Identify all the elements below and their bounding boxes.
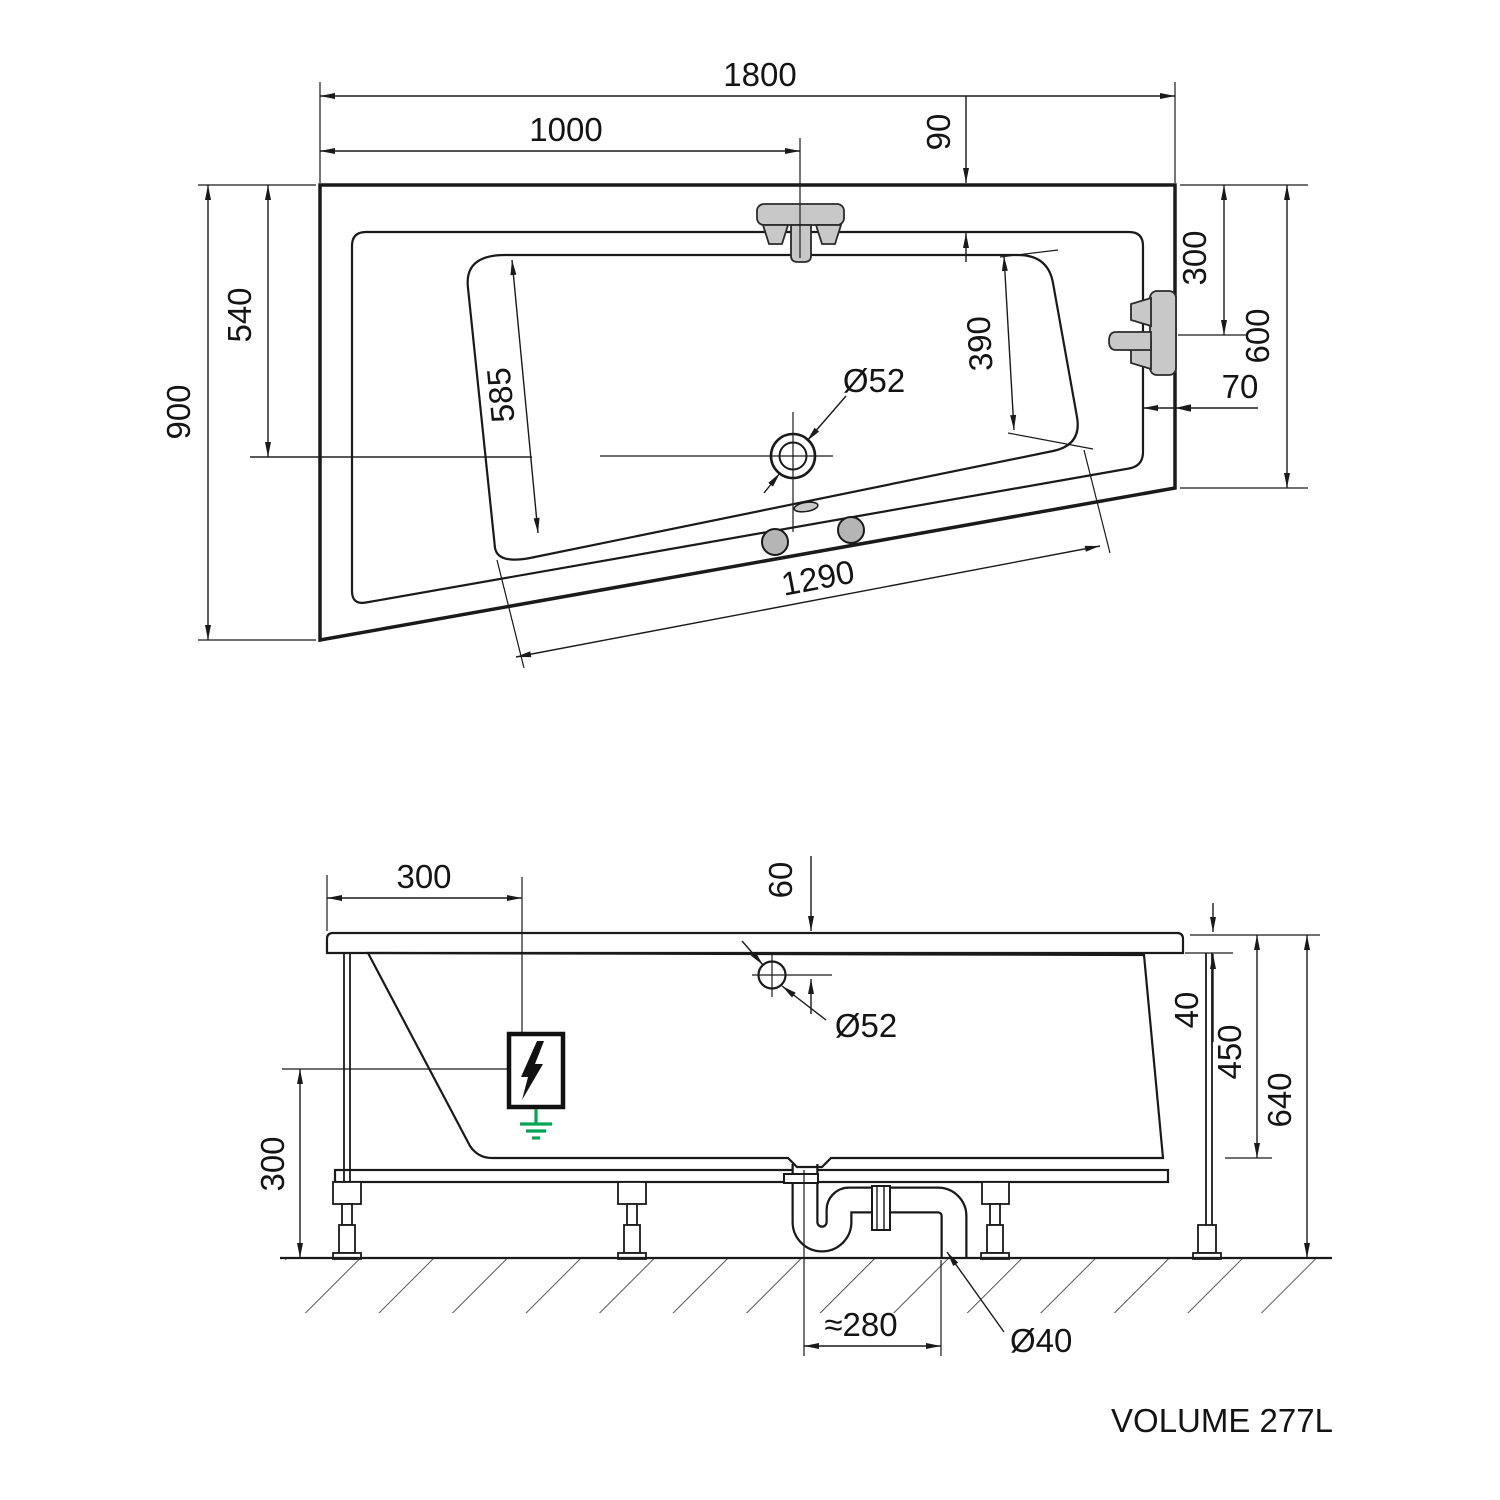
dim-electric-from-left: 300 (327, 858, 522, 931)
dim-1800-label: 1800 (723, 56, 796, 93)
dim-300-left-label: 300 (254, 1136, 291, 1191)
faucet-handle-left (763, 225, 788, 244)
dim-1290-label: 1290 (778, 553, 857, 603)
dim-390-label: 390 (959, 315, 999, 372)
frame-rail (335, 1170, 1168, 1182)
faucet-side-icon (1109, 291, 1176, 375)
dim-280-label: ≈280 (824, 1306, 897, 1343)
dim-1000-label: 1000 (529, 111, 602, 148)
foot-bracket (333, 1182, 361, 1204)
dim-540-label: 540 (221, 287, 258, 342)
dim-basin-length-bottom: 1290 (497, 450, 1110, 668)
overflow-hole-section: Ø52 (742, 941, 897, 1044)
dim-total-height: 640 (1261, 935, 1307, 1258)
bathtub-drawing: Ø52 1800 1000 (0, 0, 1500, 1500)
faucet-handle-right (816, 225, 841, 244)
basin-contour-plan (468, 255, 1078, 560)
dim-40-label: 40 (1168, 992, 1205, 1029)
earth-ground-icon (520, 1109, 552, 1138)
dim-300-top-label: 300 (396, 858, 451, 895)
faucet-spout-right (1109, 332, 1151, 350)
rim-deck (327, 933, 1183, 953)
dim-length-overall: 1800 (320, 56, 1175, 183)
dim-300-right-label: 300 (1176, 230, 1213, 285)
side-view: Ø52 300 60 40 450 (254, 856, 1332, 1359)
drain-diameter-label: Ø52 (843, 362, 905, 399)
dim-450-label: 450 (1211, 1024, 1248, 1079)
floor-hatching (285, 1259, 1330, 1313)
dim-585-label: 585 (480, 366, 522, 424)
top-view: Ø52 1800 1000 (160, 56, 1308, 668)
drain-plan: Ø52 (250, 362, 905, 532)
dim-90-label: 90 (920, 114, 957, 151)
tub-body-section (368, 953, 1163, 1167)
foot-circle-right (838, 517, 864, 543)
dim-600-label: 600 (1239, 308, 1276, 363)
support-feet (333, 953, 1221, 1259)
dim-rim-inset-top: 90 (920, 96, 966, 262)
faucet-handle-top (1131, 298, 1151, 326)
tub-outline-plan (320, 185, 1175, 640)
dim-frame-clearance: 300 (254, 1069, 509, 1258)
dim-faucet-from-top: 300 (1176, 185, 1246, 335)
rim-contour-plan (352, 232, 1143, 603)
dim-width-left: 900 (160, 185, 316, 640)
volume-label: VOLUME 277L (1111, 1402, 1333, 1439)
trap-union-nut (872, 1186, 890, 1230)
dim-70-label: 70 (1222, 368, 1259, 405)
dim-body-height: 450 (1190, 935, 1320, 1158)
floor (280, 1258, 1332, 1313)
faucet-body-right (1150, 291, 1176, 375)
foot-block (339, 1225, 355, 1253)
faucet-spout (791, 225, 811, 262)
dim-overflow-diameter-label: Ø52 (835, 1007, 897, 1044)
dim-width-right: 600 (1180, 185, 1308, 488)
technical-drawing-page: Ø52 1800 1000 (0, 0, 1500, 1500)
dim-rim-thickness: 40 (1168, 903, 1233, 1042)
dim-60-label: 60 (762, 862, 799, 899)
foot-circle-left (762, 529, 788, 555)
trap-collar (784, 1174, 818, 1183)
foot-stem (342, 1204, 352, 1225)
drain-trap (784, 1164, 954, 1258)
electric-bonding-symbol (509, 877, 563, 1138)
dim-basin-width-foot: 390 (959, 250, 1093, 449)
dim-40dia-label: Ø40 (1010, 1322, 1072, 1359)
dim-640-label: 640 (1261, 1072, 1298, 1127)
dim-900-label: 900 (160, 384, 197, 439)
